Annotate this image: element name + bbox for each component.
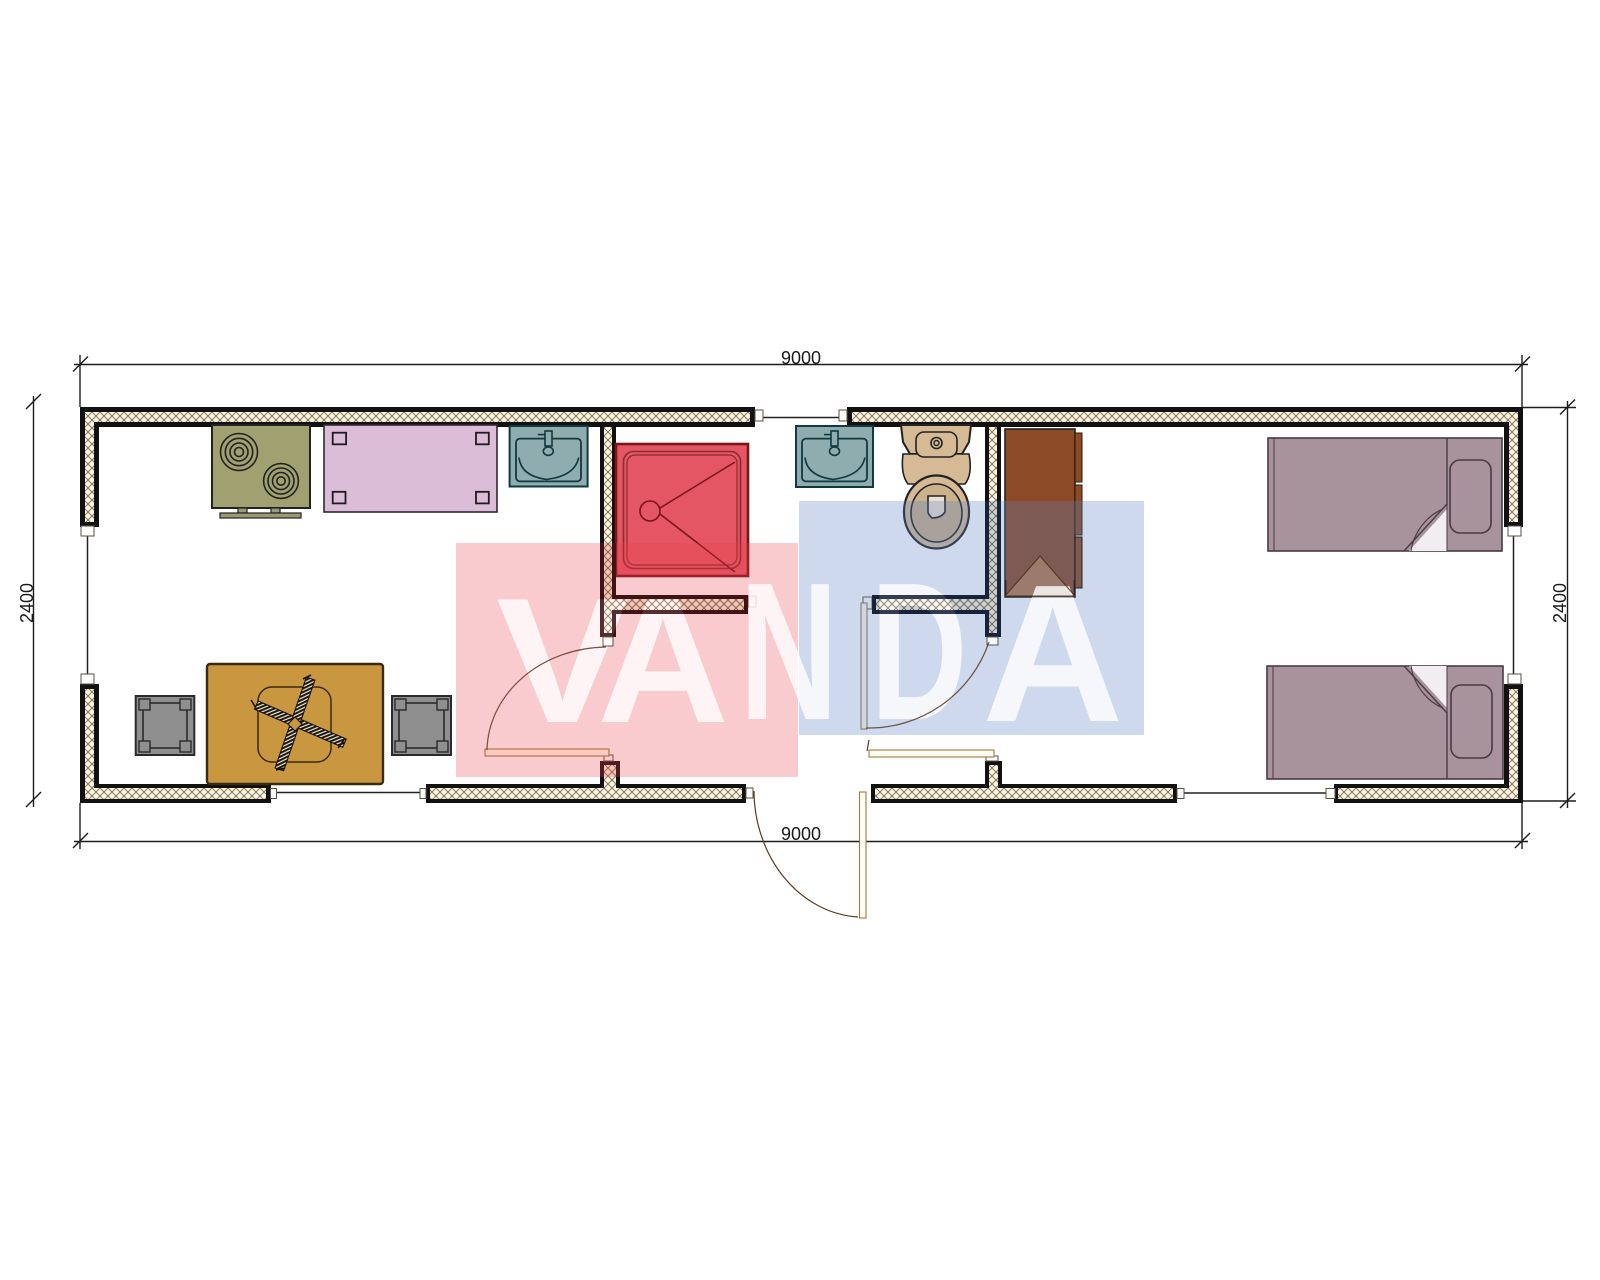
svg-text:2400: 2400: [17, 583, 37, 623]
svg-text:2400: 2400: [1550, 583, 1570, 623]
svg-text:N: N: [740, 541, 838, 760]
svg-text:9000: 9000: [781, 348, 821, 368]
svg-text:A: A: [982, 544, 1124, 763]
svg-text:9000: 9000: [781, 824, 821, 844]
svg-text:A: A: [597, 562, 729, 760]
svg-text:D: D: [871, 542, 968, 761]
